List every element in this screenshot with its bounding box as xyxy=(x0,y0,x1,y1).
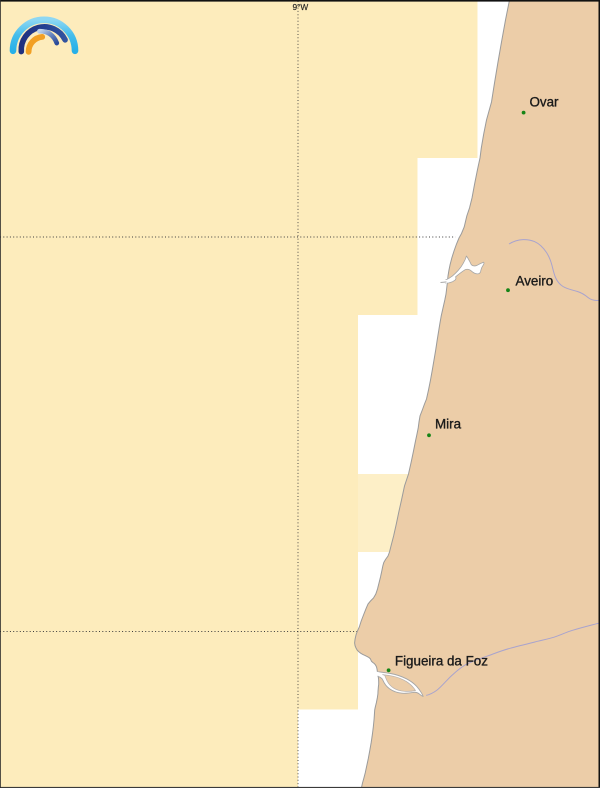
svg-text:Ovar: Ovar xyxy=(530,95,560,110)
svg-text:Mira: Mira xyxy=(435,416,462,431)
svg-text:Aveiro: Aveiro xyxy=(516,273,554,288)
svg-text:Figueira da Foz: Figueira da Foz xyxy=(395,654,488,669)
svg-text:9°W: 9°W xyxy=(293,2,309,12)
